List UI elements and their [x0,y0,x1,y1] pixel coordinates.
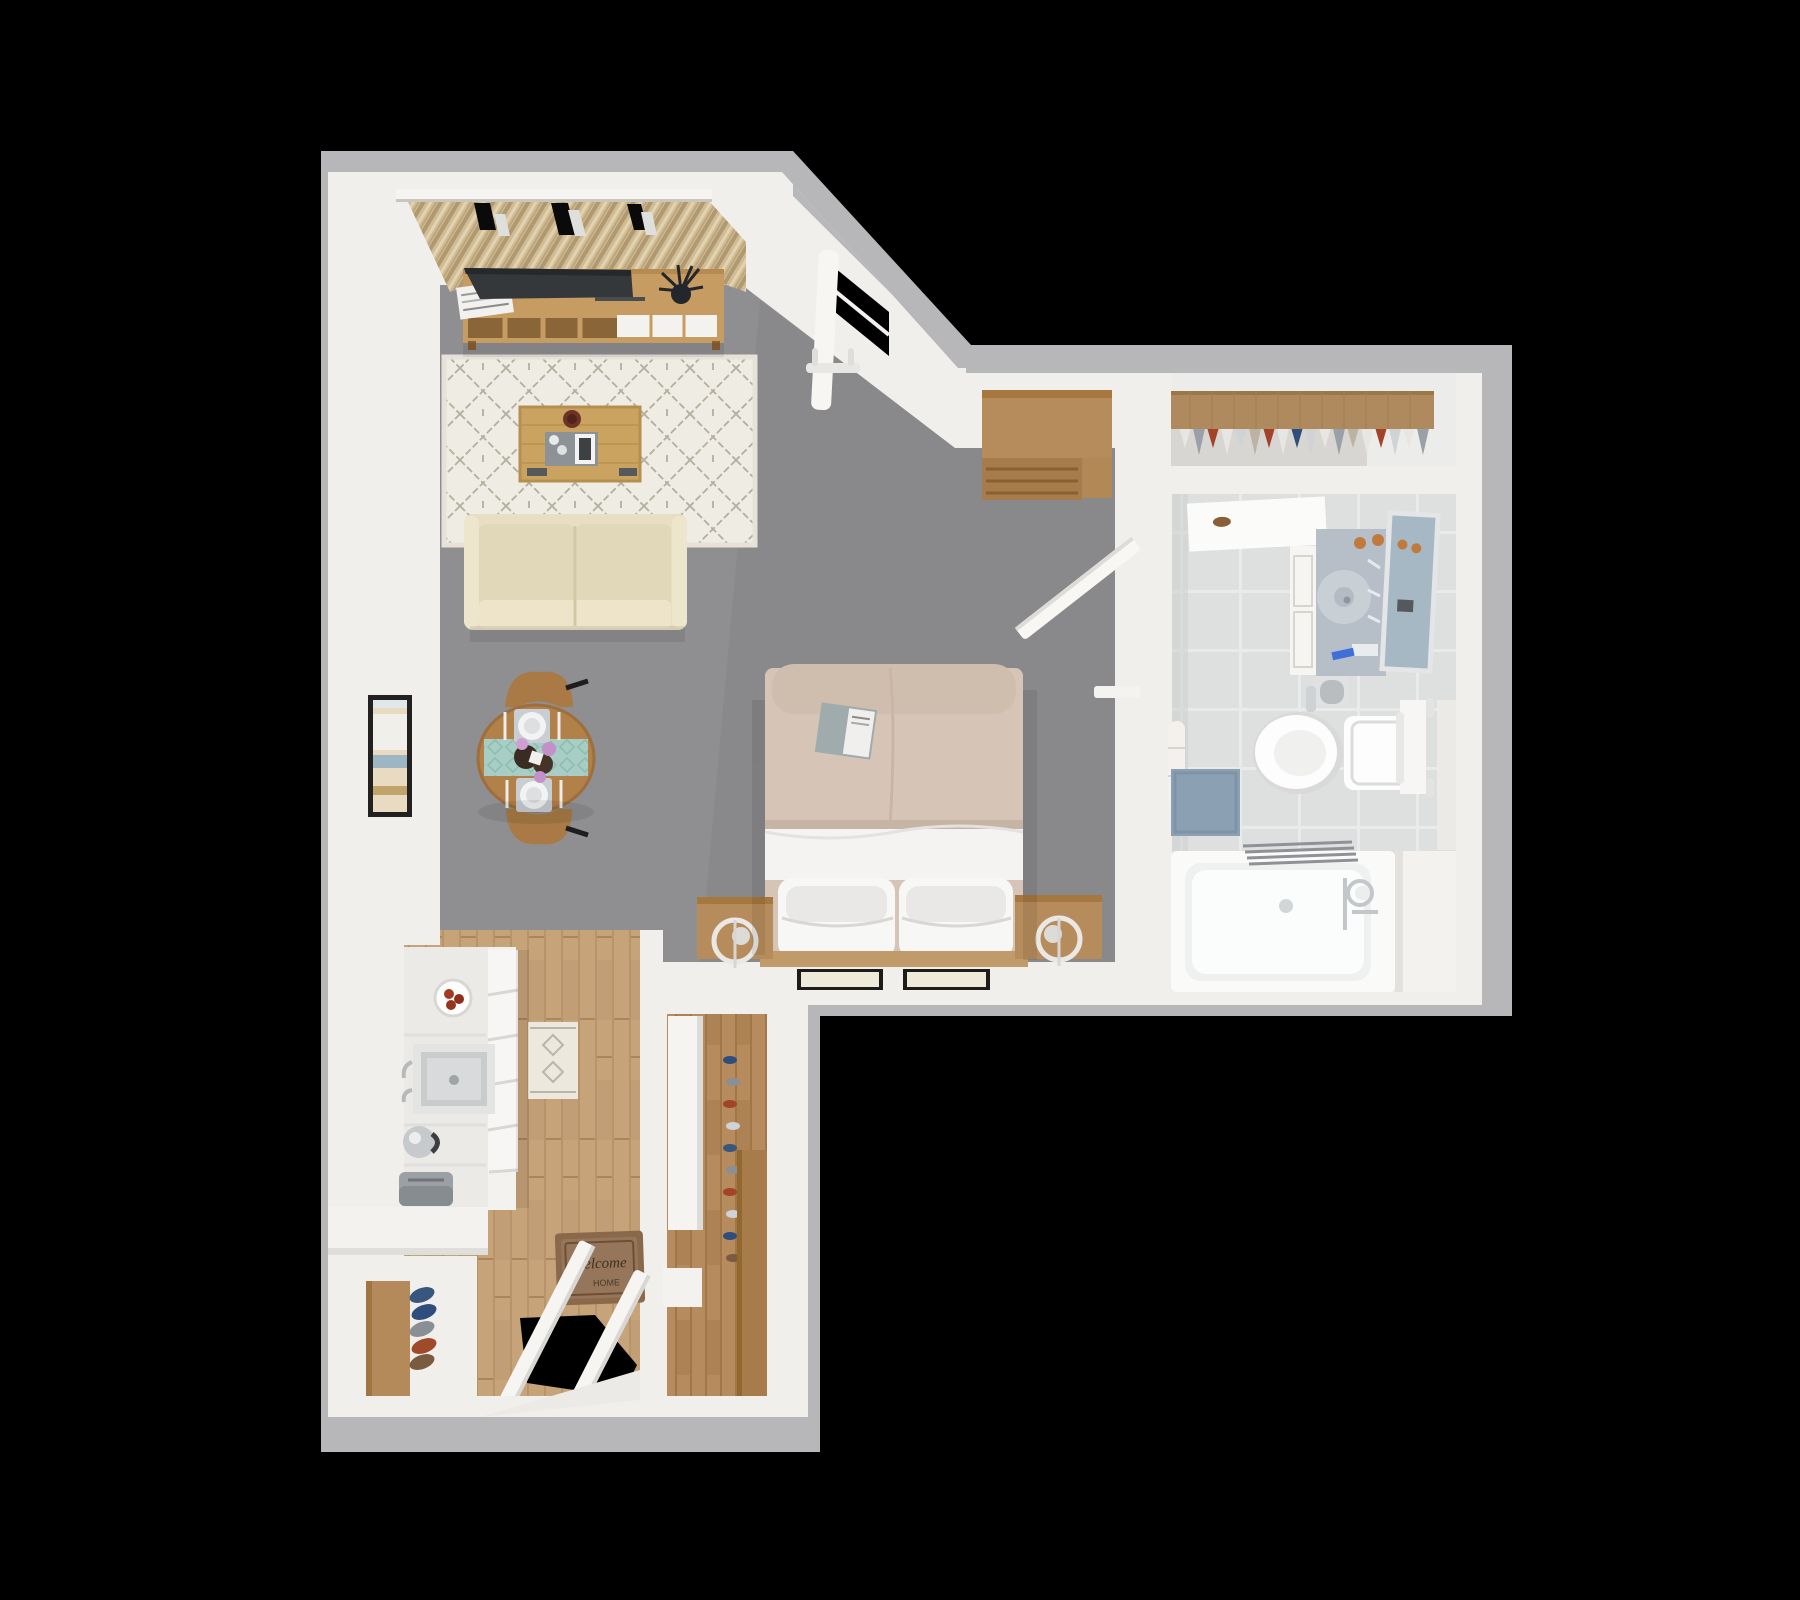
svg-text:HOME: HOME [593,1277,620,1288]
